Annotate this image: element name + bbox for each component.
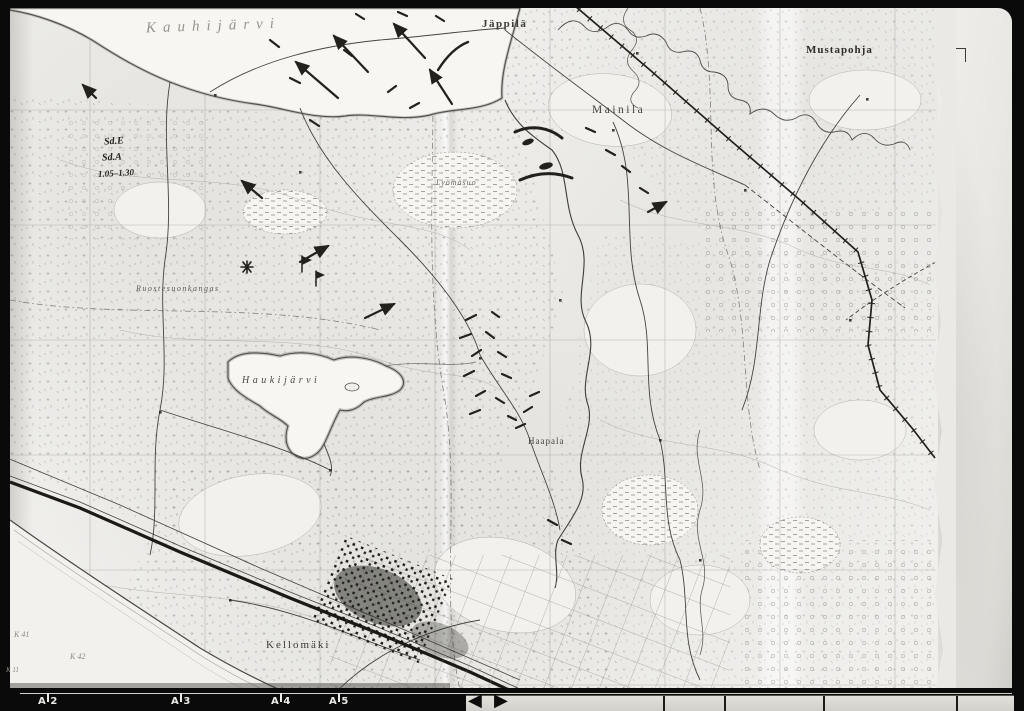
map-label-haukijarvi: Haukijärvi	[242, 375, 320, 386]
ruler-mark-a3: A3	[171, 696, 190, 710]
ruler-mark-a4: A4	[271, 696, 290, 710]
map-label-mustapohja: Mustapohja	[806, 44, 873, 56]
grid-label-k41: K 41	[14, 630, 29, 639]
map-canvas	[0, 0, 1024, 710]
ruler-mark-letter: A	[271, 696, 279, 708]
ruler-marker-right-icon: ▶	[494, 692, 508, 710]
ruler-mark-letter: A	[171, 696, 179, 708]
ruler-tick	[280, 693, 282, 702]
ruler-mark-a5: A5	[329, 696, 348, 710]
grid-label-k11: K 11	[6, 666, 19, 674]
map-label-mainila: Mainila	[592, 104, 645, 116]
ruler-mark-number: 4	[283, 696, 290, 708]
ruler-mark-a2: A2	[38, 696, 57, 710]
ruler-tick	[338, 693, 340, 702]
ruler-division	[823, 696, 825, 711]
ruler-tick	[180, 693, 182, 702]
map-label-lyomasuo: Lyömäsuo	[436, 178, 477, 187]
scanned-map-page: { "scan": { "background_color": "#0a0a0a…	[0, 0, 1024, 710]
annotation-times: 1.05–1.30	[98, 167, 134, 179]
ruler-tick	[47, 693, 49, 702]
ruler-division	[724, 696, 726, 711]
annotation-sd-e: Sd.E	[104, 135, 124, 147]
annotation-sd-a: Sd.A	[102, 151, 122, 163]
ruler-strip: A2 A3 A4 A5 ◀ ▶	[0, 688, 1024, 710]
ruler-mark-letter: A	[38, 696, 46, 708]
ruler-light-strip	[466, 695, 1014, 711]
map-label-kellomaki: Kellomäki	[266, 639, 330, 651]
map-label-haapala: Haapala	[528, 436, 564, 446]
ruler-marker-left-icon: ◀	[468, 692, 482, 710]
ruler-mark-number: 2	[50, 696, 57, 708]
ruler-mark-number: 5	[341, 696, 348, 708]
ruler-hairline	[20, 693, 1012, 694]
map-label-jappila: Jäppilä	[482, 18, 527, 30]
ruler-mark-number: 3	[183, 696, 190, 708]
ruler-division	[663, 696, 665, 711]
grid-label-k42: K 42	[70, 652, 85, 661]
ruler-division	[956, 696, 958, 711]
map-label-ruostesuonkangas: Ruostesuonkangas	[136, 284, 220, 293]
ruler-mark-letter: A	[329, 696, 337, 708]
